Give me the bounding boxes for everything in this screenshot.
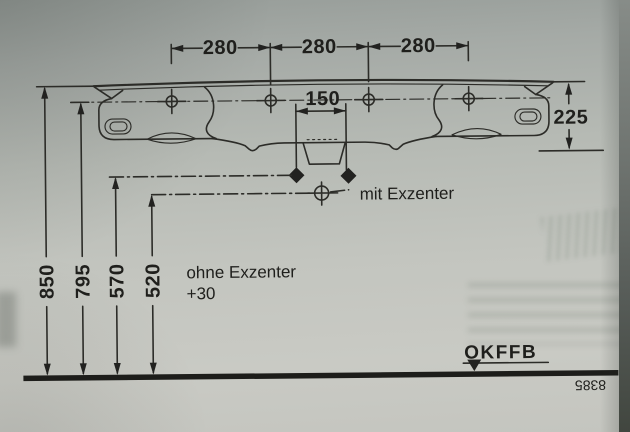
- dim-label-280-center: 280: [302, 36, 337, 58]
- height-label-850: 850: [36, 264, 58, 299]
- without-eccentric-label: ohne Exzenter: [186, 262, 296, 282]
- bowl-right-curve: [432, 85, 443, 137]
- crosshair-icon: [158, 89, 186, 113]
- top-arrowheads: [41, 86, 155, 208]
- floor-line: [23, 373, 618, 379]
- with-eccentric-label: mit Exzenter: [360, 184, 455, 204]
- basin-right-edge: [436, 94, 549, 136]
- crosshair-icon: [455, 86, 483, 110]
- reference-line-570: [109, 175, 295, 177]
- dimension-150: 150: [288, 88, 357, 185]
- dim-label-150: 150: [305, 88, 340, 110]
- fixing-hole-left-inner: [110, 122, 127, 131]
- height-dimensions: 850 795 570 520: [35, 84, 351, 376]
- crosshair-icon: [257, 88, 285, 112]
- height-label-570: 570: [106, 263, 128, 298]
- fixing-hole-right-inner: [520, 112, 537, 121]
- eccentric-outlet-marker: [308, 182, 338, 205]
- washbasin-installation-diagram: 280 280 280 150 225: [0, 0, 630, 432]
- dim-label-225: 225: [553, 106, 588, 128]
- height-line-850: [45, 89, 48, 374]
- height-line-795: [81, 104, 84, 373]
- reference-line-520: [152, 190, 349, 195]
- recess-right: [452, 128, 501, 139]
- page-edge-band: [619, 0, 630, 432]
- bowl-bottom-contour: [212, 136, 436, 151]
- dimension-top-chain: 280 280 280: [171, 35, 468, 86]
- scanned-technical-drawing-page: 280 280 280 150 225: [0, 0, 630, 432]
- height-label-520: 520: [142, 263, 164, 298]
- extension-lines: [296, 104, 347, 170]
- floor-level-triangle-icon: [467, 360, 481, 372]
- basin-right-bevel: [525, 83, 553, 95]
- bowl-left-curve: [205, 87, 216, 139]
- basin-left-bevel: [95, 87, 123, 99]
- height-label-795: 795: [72, 264, 94, 299]
- dim-label-280-right: 280: [401, 35, 436, 57]
- drain-outlet: [303, 143, 345, 164]
- crosshair-icon: [355, 87, 383, 111]
- reference-line-850: [37, 86, 96, 87]
- dim-label-280-left: 280: [203, 37, 238, 59]
- floor-reference: OKFFB 8385: [23, 341, 618, 399]
- drain-position-diamond-right: [340, 168, 356, 184]
- floor-arrowheads: [44, 363, 157, 376]
- without-eccentric-offset: +30: [187, 284, 216, 303]
